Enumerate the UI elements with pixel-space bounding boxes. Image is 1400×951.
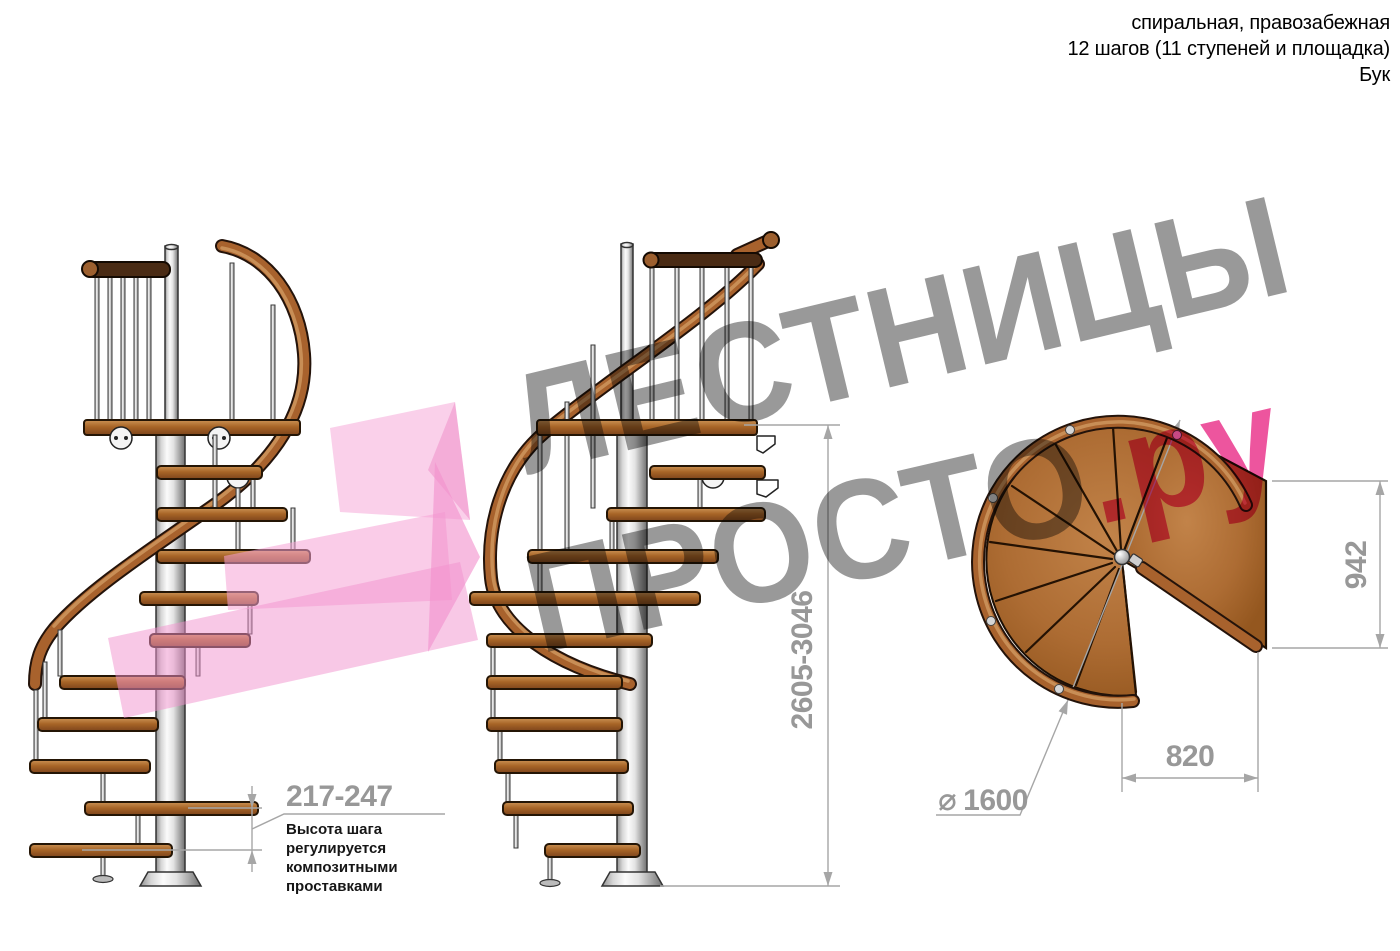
plan-view: [936, 420, 1266, 815]
step-height-note: Высота шага регулируется композитными пр…: [286, 820, 426, 896]
plan-center-ball: [1115, 550, 1130, 565]
middle-bracket-1: [757, 436, 775, 453]
header-steps: 12 шагов (11 ступеней и площадка): [1067, 36, 1390, 62]
middle-column-post-cap: [621, 243, 633, 248]
dim-plan-width-label: 820: [1166, 740, 1215, 773]
drawing-header: спиральная, правозабежная 12 шагов (11 с…: [1067, 10, 1390, 88]
dim-total-height: 2605-3046: [660, 425, 840, 886]
middle-base-flange: [602, 872, 663, 886]
dim-step-height-label: 217-247: [286, 780, 393, 813]
header-type: спиральная, правозабежная: [1067, 10, 1390, 36]
left-column-post-cap: [165, 245, 178, 250]
dim-plan-depth-label: 942: [1340, 541, 1373, 590]
middle-bracket-2: [757, 480, 778, 497]
left-base-flange: [140, 872, 201, 886]
left-handrail-end-ball: [82, 261, 98, 277]
middle-handrail-end-ball: [644, 253, 659, 268]
middle-platform-handrail-bar: [646, 253, 762, 267]
dim-total-height-label: 2605-3046: [786, 591, 819, 730]
middle-column-post: [621, 244, 633, 422]
dim-diameter-label: ⌀1600: [938, 782, 1028, 818]
header-material: Бук: [1067, 62, 1390, 88]
middle-rod-foot: [540, 880, 560, 887]
staircase-drawing: 2605-3046 217-247 942 820: [0, 0, 1400, 951]
diameter-symbol: ⌀: [938, 782, 956, 818]
dim-plan-depth: 942: [1272, 481, 1388, 648]
dim-plan-width: 820: [1122, 652, 1258, 792]
middle-elevation-view: [470, 232, 779, 887]
left-rod-foot: [93, 876, 113, 883]
middle-platform-board: [537, 420, 757, 435]
drawing-canvas: 2605-3046 217-247 942 820: [0, 0, 1400, 951]
